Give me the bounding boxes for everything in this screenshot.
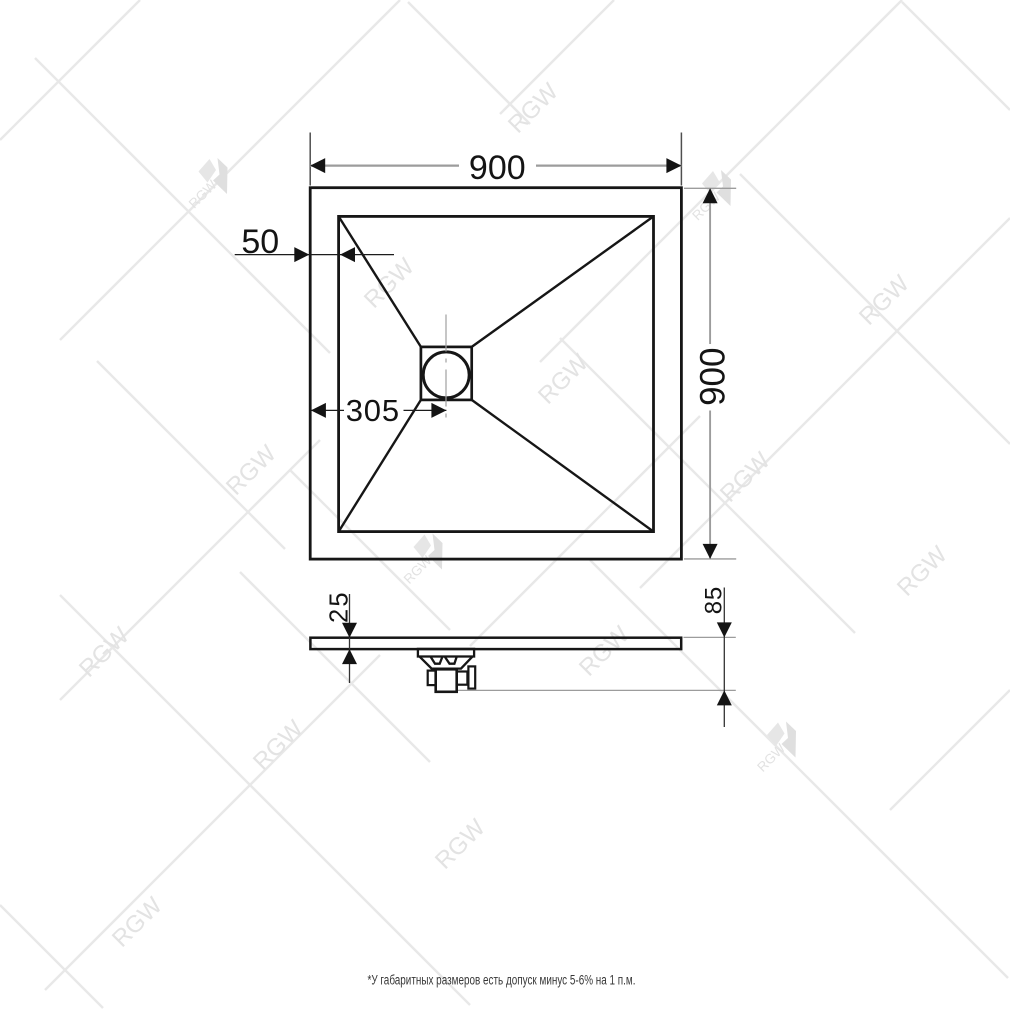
svg-text:305: 305 [346,393,400,428]
svg-text:900: 900 [694,347,733,405]
svg-text:50: 50 [241,223,279,261]
svg-text:25: 25 [325,590,353,623]
svg-text:85: 85 [700,586,727,614]
svg-text:900: 900 [469,149,526,187]
svg-text:*У габаритных размеров есть до: *У габаритных размеров есть допуск минус… [368,973,636,988]
